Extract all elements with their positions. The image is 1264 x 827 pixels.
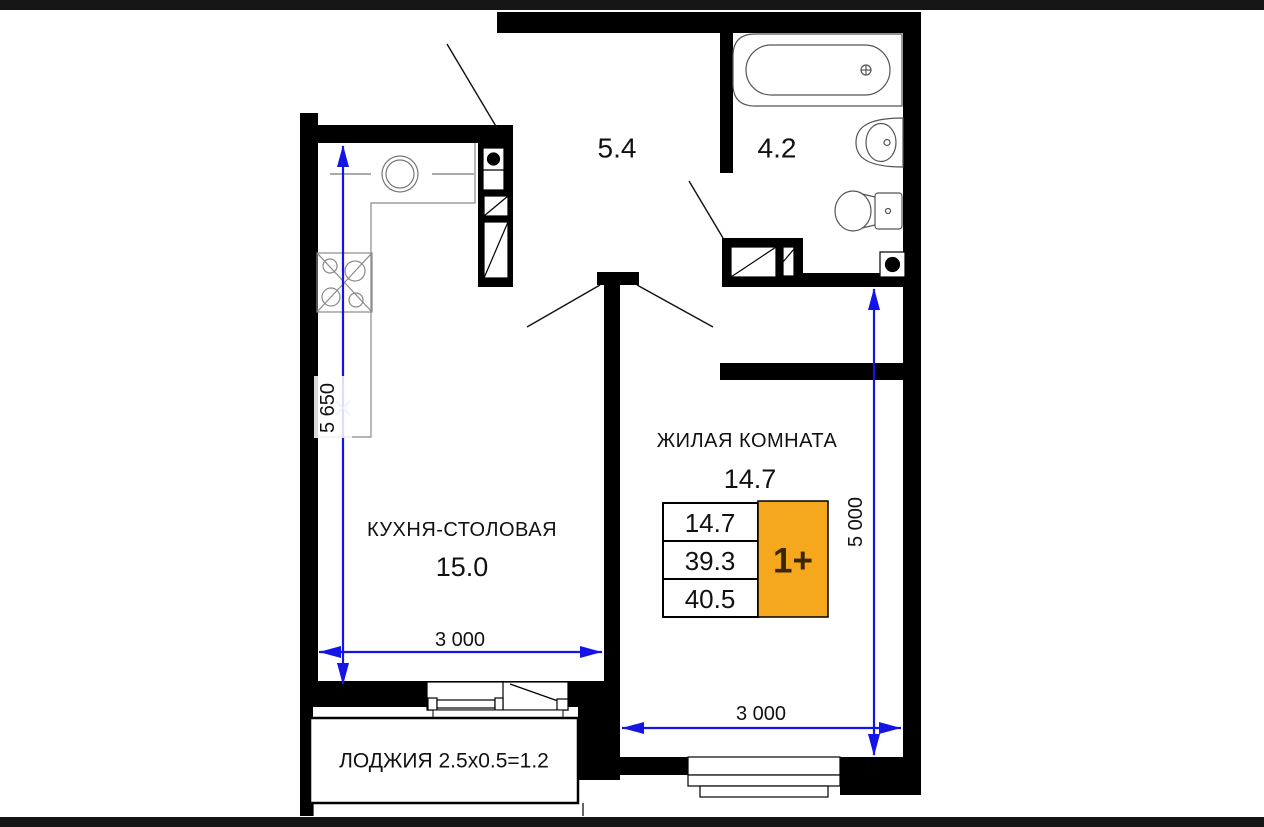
kitchen-name: КУХНЯ-СТОЛОВАЯ [367,519,557,541]
spec-table: 14.7 39.3 40.5 1+ [663,501,828,617]
kitchen-area: 15.0 [436,552,489,582]
kitchen-balcony-unit [427,682,568,718]
loggia-label: ЛОДЖИЯ 2.5x0.5=1.2 [339,750,549,773]
kitchen-sink [330,156,474,192]
living-room-name: ЖИЛАЯ КОМНАТА [657,430,838,452]
dim-living-width: 3 000 [736,703,786,725]
bathroom-door-swing [689,181,723,238]
living-room-area: 14.7 [724,464,777,494]
loggia: ЛОДЖИЯ 2.5x0.5=1.2 [310,718,578,803]
dim-living-height: 5 000 [845,497,867,547]
stove [317,253,372,312]
hallway-area: 5.4 [598,133,637,164]
living-door-swing-right [637,285,713,327]
floorplan-drawing: 14.7 39.3 40.5 1+ 5.4 4.2 ЖИЛАЯ КОМНАТА … [0,0,1264,827]
vent-dot-bathroom [886,258,900,272]
bathroom-area: 4.2 [758,133,797,164]
labels: 5.4 4.2 ЖИЛАЯ КОМНАТА 14.7 КУХНЯ-СТОЛОВА… [317,133,867,726]
dim-kitchen-width: 3 000 [435,629,485,651]
toilet [835,191,902,231]
top-bar [0,0,1264,10]
spec-row-living-area: 14.7 [685,508,736,538]
floorplan-image: 14.7 39.3 40.5 1+ 5.4 4.2 ЖИЛАЯ КОМНАТА … [0,0,1264,827]
entrance-door-swing [447,44,497,128]
vent-dot-kitchen [488,153,500,165]
loggia-outline [313,803,583,816]
spec-row-total-area: 40.5 [685,584,736,614]
vent-shafts [483,148,905,278]
living-door-swing-left [527,285,600,327]
dim-kitchen-height: 5 650 [317,383,339,433]
apartment-type-label: 1+ [773,542,813,581]
bathtub [733,34,902,106]
bottom-bar [0,817,1264,827]
sink [856,118,903,167]
spec-row-area: 39.3 [685,546,736,576]
living-window [688,757,840,797]
